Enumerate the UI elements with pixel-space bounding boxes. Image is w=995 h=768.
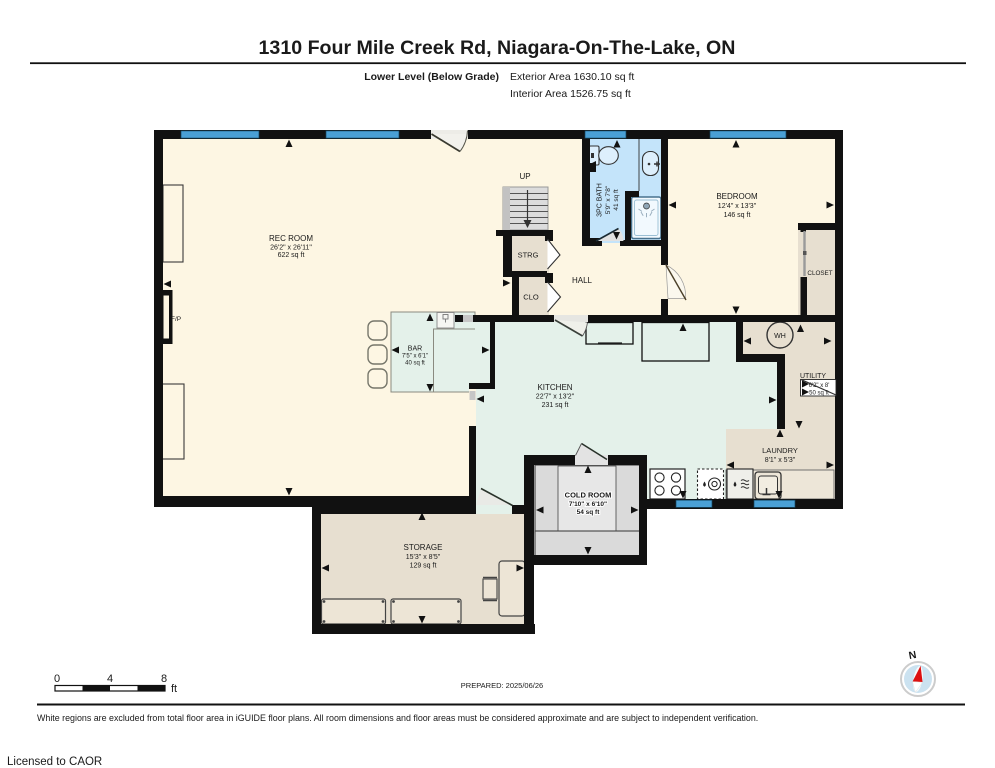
svg-text:CLOSET: CLOSET [807,270,832,277]
svg-text:15'3" x 8'5": 15'3" x 8'5" [406,554,441,561]
svg-text:7'5" x 6'1": 7'5" x 6'1" [402,354,428,360]
svg-text:231 sq ft: 231 sq ft [542,402,569,409]
svg-text:622 sq ft: 622 sq ft [278,252,305,259]
svg-text:STORAGE: STORAGE [404,543,443,552]
svg-text:ft: ft [171,683,177,695]
svg-text:12'4" x 13'3": 12'4" x 13'3" [718,203,757,210]
svg-text:40 sq ft: 40 sq ft [405,361,425,367]
svg-text:F/P: F/P [171,316,181,323]
svg-text:54 sq ft: 54 sq ft [577,509,601,516]
svg-text:PREPARED: 2025/06/26: PREPARED: 2025/06/26 [461,681,543,690]
svg-text:146 sq ft: 146 sq ft [724,212,751,219]
svg-text:8: 8 [161,673,167,685]
svg-text:Interior Area 1526.75 sq ft: Interior Area 1526.75 sq ft [510,88,631,100]
svg-text:STRG: STRG [518,251,539,260]
svg-text:1310 Four Mile Creek Rd, Niaga: 1310 Four Mile Creek Rd, Niagara-On-The-… [259,37,736,59]
svg-text:Licensed to CAOR: Licensed to CAOR [7,756,102,768]
svg-text:COLD ROOM: COLD ROOM [565,491,612,500]
svg-text:LAUNDRY: LAUNDRY [762,446,798,455]
svg-text:5'9" x 7'8": 5'9" x 7'8" [605,185,612,214]
svg-text:White regions are excluded fro: White regions are excluded from total fl… [37,713,758,723]
svg-text:22'7" x 13'2": 22'7" x 13'2" [536,394,575,401]
svg-text:7'10" x 6'10": 7'10" x 6'10" [569,501,607,508]
svg-text:UP: UP [519,172,530,181]
svg-text:3PC BATH: 3PC BATH [597,183,604,217]
svg-text:0: 0 [54,673,60,685]
svg-text:WH: WH [774,333,786,340]
svg-text:CLO: CLO [523,293,539,302]
svg-text:50 sq ft: 50 sq ft [809,391,829,397]
svg-text:129 sq ft: 129 sq ft [410,563,437,570]
svg-text:REC ROOM: REC ROOM [269,234,313,243]
svg-text:Exterior Area 1630.10 sq ft: Exterior Area 1630.10 sq ft [510,71,634,83]
svg-text:4: 4 [107,673,113,685]
svg-text:BEDROOM: BEDROOM [716,192,758,201]
svg-text:41 sq ft: 41 sq ft [613,189,620,211]
svg-text:KITCHEN: KITCHEN [537,383,572,392]
svg-text:Lower Level (Below Grade): Lower Level (Below Grade) [364,71,499,83]
svg-text:BAR: BAR [408,346,422,353]
svg-text:HALL: HALL [572,276,593,285]
svg-text:26'2" x 26'11": 26'2" x 26'11" [270,245,312,252]
svg-text:8'1" x 5'3": 8'1" x 5'3" [765,457,796,464]
svg-text:UTILITY: UTILITY [800,373,826,380]
